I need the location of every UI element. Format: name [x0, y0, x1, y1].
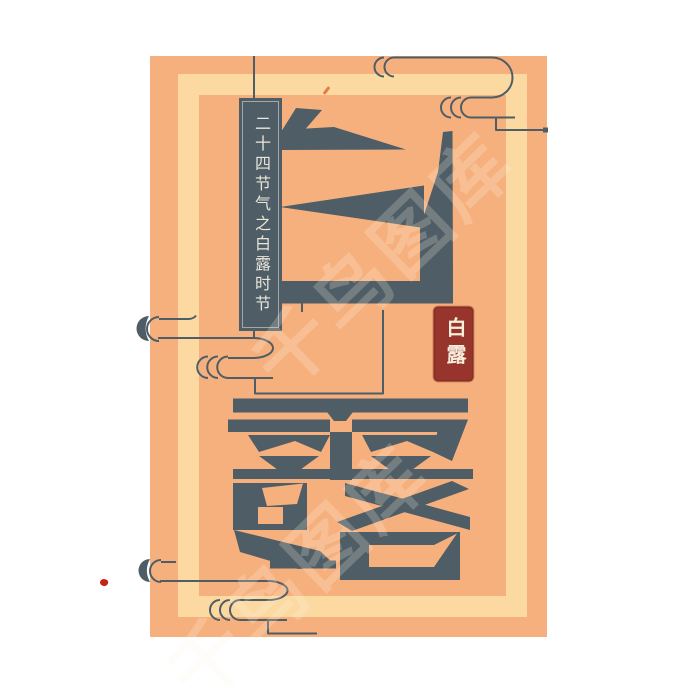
decorative-frame — [178, 74, 527, 617]
poster-canvas: 白露 白 露 — [0, 0, 700, 700]
title-banner: 二十四节气之白露时节 — [239, 98, 282, 331]
seal-label: 白露 — [437, 317, 470, 371]
red-accent-dot — [99, 578, 109, 587]
red-seal: 白露 — [435, 308, 472, 380]
poster-card — [150, 56, 547, 637]
banner-inner-border — [242, 101, 279, 328]
